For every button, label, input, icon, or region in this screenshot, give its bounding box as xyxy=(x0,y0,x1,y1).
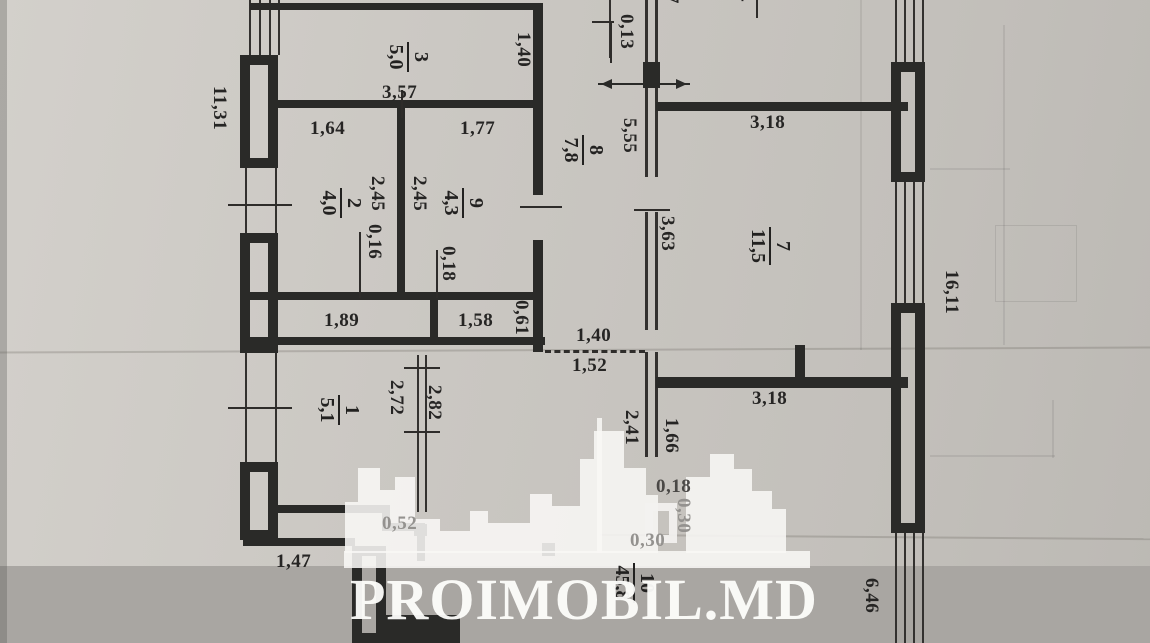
fraction-bar xyxy=(340,188,342,218)
dim-label: 1,52 xyxy=(572,355,607,377)
room-number: 9 xyxy=(465,198,486,208)
watermark-skyline xyxy=(752,491,772,553)
room-label-7: 7 11,5 xyxy=(747,227,793,265)
room-area: 4,0 xyxy=(318,191,339,216)
watermark-skyline xyxy=(710,454,734,553)
watermark-skyline xyxy=(530,494,552,553)
dim-label: 1,40 xyxy=(512,32,534,67)
floor-plan-scan: 1 5,1 2 4,0 3 5,0 7 11,5 8 7,8 9 4,3 10 … xyxy=(0,0,1150,643)
window-lines xyxy=(913,0,915,62)
fraction-bar xyxy=(338,395,340,425)
dim-label: 2,45 xyxy=(366,176,388,211)
wall xyxy=(240,337,545,345)
dashed-opening xyxy=(545,350,645,353)
entry-arrow-right xyxy=(676,79,687,89)
room-label-2: 2 4,0 xyxy=(318,188,364,218)
dim-label: 16,11 xyxy=(940,270,962,314)
room-label-8: 8 7,8 xyxy=(560,135,606,165)
room-number: 3 xyxy=(410,52,431,62)
dim-label: 11,31 xyxy=(208,86,230,130)
dim-tick xyxy=(404,367,440,369)
room-area: 7,8 xyxy=(560,138,581,163)
wall xyxy=(656,377,908,388)
dim-tick xyxy=(634,209,670,211)
wall-pier xyxy=(240,55,278,168)
wall xyxy=(240,292,542,300)
paper-fold-line xyxy=(860,0,862,350)
window-lines xyxy=(895,0,897,62)
bleed-through-line xyxy=(930,455,1055,457)
window-lines xyxy=(913,533,915,643)
wall-lines xyxy=(645,352,648,457)
room-label-3: 3 5,0 xyxy=(385,42,431,72)
window-lines xyxy=(904,533,906,643)
window-lines xyxy=(922,533,924,643)
dim-tick xyxy=(404,431,440,433)
watermark-skyline xyxy=(470,511,488,553)
dim-label: 1,47 xyxy=(276,551,311,573)
entry-arrow-left xyxy=(601,79,612,89)
dim-tick xyxy=(756,0,758,18)
wall-pier xyxy=(891,62,925,182)
wall-lines xyxy=(645,0,648,62)
partition-lines xyxy=(417,355,419,512)
dim-label: 2,45 xyxy=(408,176,430,211)
window-lines xyxy=(904,182,906,303)
dim-label: 0,30 xyxy=(672,498,694,533)
wall xyxy=(397,104,405,296)
room-area: 4,3 xyxy=(440,191,461,216)
wall-lines xyxy=(645,88,648,177)
dim-label: 0,52 xyxy=(382,513,417,535)
window-lines xyxy=(895,182,897,303)
dim-label: 3,63 xyxy=(656,216,678,251)
watermark-skyline xyxy=(552,506,580,553)
window-lines xyxy=(245,168,247,233)
wall-lines xyxy=(655,352,658,457)
watermark-skyline xyxy=(488,523,530,553)
dim-label: 3,18 xyxy=(752,388,787,410)
fraction-bar xyxy=(407,42,409,72)
room-number: 1 xyxy=(341,405,362,415)
dim-label: 0,16 xyxy=(363,224,385,259)
wall-lines xyxy=(645,212,648,330)
watermark-skyline xyxy=(415,519,440,553)
room-number: 8 xyxy=(585,145,606,155)
dim-tick xyxy=(359,232,361,298)
dim-label: 0,13 xyxy=(615,14,637,49)
wall-lines xyxy=(655,0,658,62)
wall xyxy=(533,3,543,195)
window-lines xyxy=(904,0,906,62)
watermark-skyline xyxy=(440,531,470,553)
dim-label-partial: 7 xyxy=(660,0,682,4)
window-lines xyxy=(895,533,897,643)
wall-stub xyxy=(430,300,438,338)
dim-bracket xyxy=(610,21,612,63)
fraction-bar xyxy=(462,188,464,218)
partition-lines xyxy=(425,355,427,512)
room-number: 2 xyxy=(343,198,364,208)
watermark-skyline xyxy=(734,469,752,553)
bleed-through-line xyxy=(930,168,1010,170)
dim-label: 1,64 xyxy=(310,118,345,140)
wall xyxy=(656,102,908,111)
fraction-bar xyxy=(769,227,771,265)
dim-label: 6,46 xyxy=(860,578,882,613)
window-lines xyxy=(922,182,924,303)
watermark-skyline xyxy=(772,509,786,553)
dim-tick xyxy=(228,204,292,206)
watermark-skyline xyxy=(580,459,594,553)
dim-label: 0,30 xyxy=(630,530,665,552)
fraction-bar xyxy=(582,135,584,165)
room-area: 5,0 xyxy=(385,45,406,70)
dim-tick xyxy=(520,206,562,208)
dim-label: 5,55 xyxy=(618,118,640,153)
dim-label: 1,89 xyxy=(324,310,359,332)
dim-label: 3,18 xyxy=(750,112,785,134)
watermark-skyline xyxy=(358,468,380,553)
window-lines xyxy=(913,182,915,303)
scan-left-edge xyxy=(0,0,7,643)
wall xyxy=(243,538,355,546)
room-area: 11,5 xyxy=(747,229,768,263)
watermark-skyline xyxy=(594,431,624,553)
dim-label: 0,61 xyxy=(510,300,532,335)
watermark-skyline xyxy=(345,502,358,553)
dim-label: 1,77 xyxy=(460,118,495,140)
paper-crease xyxy=(600,534,1150,540)
dim-label: 1,58 xyxy=(458,310,493,332)
dim-label-partial: 4 xyxy=(733,0,755,2)
bleed-through-line xyxy=(1052,400,1054,458)
wall-pier xyxy=(891,303,925,533)
dim-label: 2,82 xyxy=(423,385,445,420)
bleed-through-box xyxy=(995,225,1077,302)
dim-label: 3,57 xyxy=(382,82,417,104)
dim-label: 0,18 xyxy=(437,246,459,281)
room-area: 5,1 xyxy=(316,398,337,423)
window-lines xyxy=(275,168,277,233)
room-label-1: 1 5,1 xyxy=(316,395,362,425)
room-label-9: 9 4,3 xyxy=(440,188,486,218)
dim-label: 0,18 xyxy=(656,476,691,498)
window-lines xyxy=(922,0,924,62)
watermark-brand: PROIMOBIL.MD xyxy=(350,566,818,633)
wall-pier xyxy=(240,462,278,540)
wall-stub xyxy=(795,345,805,379)
dim-label: 1,66 xyxy=(660,418,682,453)
room-number: 7 xyxy=(772,241,793,251)
wall xyxy=(250,3,542,10)
dim-tick xyxy=(228,407,292,409)
dim-label: 1,40 xyxy=(576,325,611,347)
dim-label: 2,72 xyxy=(385,380,407,415)
